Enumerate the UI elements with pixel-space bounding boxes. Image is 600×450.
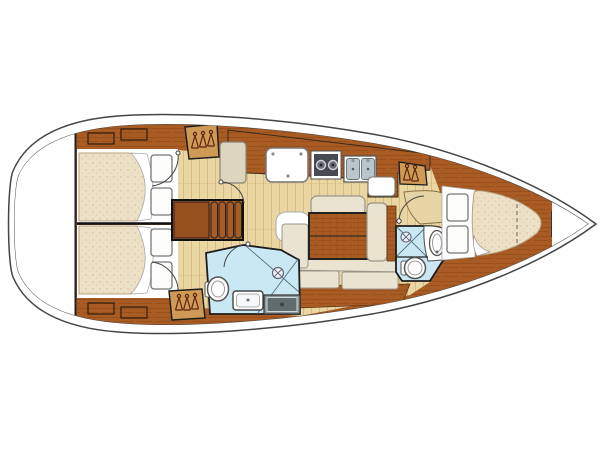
toilet bbox=[401, 258, 426, 279]
door-hinge-dot bbox=[219, 180, 223, 184]
stair-step bbox=[219, 202, 226, 238]
pillow bbox=[151, 229, 172, 256]
stair-step bbox=[211, 202, 218, 238]
pillow bbox=[447, 194, 468, 221]
hanging-locker-aft-bottom bbox=[169, 289, 205, 320]
shower-drain bbox=[273, 268, 284, 279]
boat-floorplan-canvas bbox=[0, 0, 600, 450]
pillow bbox=[447, 226, 468, 253]
head-sink bbox=[233, 291, 263, 310]
stair-step bbox=[235, 202, 242, 238]
settee-right-arm bbox=[367, 203, 387, 261]
yacht-deck-plan bbox=[0, 0, 600, 450]
bow-locker-area bbox=[552, 105, 600, 355]
bench-seat-cushion bbox=[342, 272, 398, 289]
galley-cabinet bbox=[220, 142, 246, 183]
locker bbox=[88, 303, 114, 314]
hanging-locker-forward bbox=[399, 162, 427, 185]
icebox-latch-dot bbox=[286, 174, 289, 177]
companionway-stairs bbox=[172, 200, 243, 240]
stair-step bbox=[227, 202, 234, 238]
locker bbox=[121, 129, 147, 140]
pillow bbox=[151, 262, 172, 289]
salon-table bbox=[309, 213, 369, 259]
locker bbox=[88, 133, 114, 144]
fridge-top bbox=[368, 177, 395, 196]
shower-pan bbox=[264, 295, 300, 314]
door-hinge-dot bbox=[397, 219, 401, 223]
door-hinge-dot bbox=[176, 151, 180, 155]
shower-drain bbox=[401, 232, 411, 242]
pillow bbox=[151, 188, 172, 215]
hanging-locker-aft-top bbox=[185, 124, 219, 159]
door-hinge-dot bbox=[246, 242, 250, 246]
icebox-hinge-dot bbox=[299, 152, 302, 155]
aft-head bbox=[205, 245, 300, 314]
stove-two-burner bbox=[311, 151, 341, 179]
settee-right-trim bbox=[387, 206, 396, 261]
icebox-hinge-dot bbox=[271, 152, 274, 155]
locker bbox=[121, 307, 147, 318]
